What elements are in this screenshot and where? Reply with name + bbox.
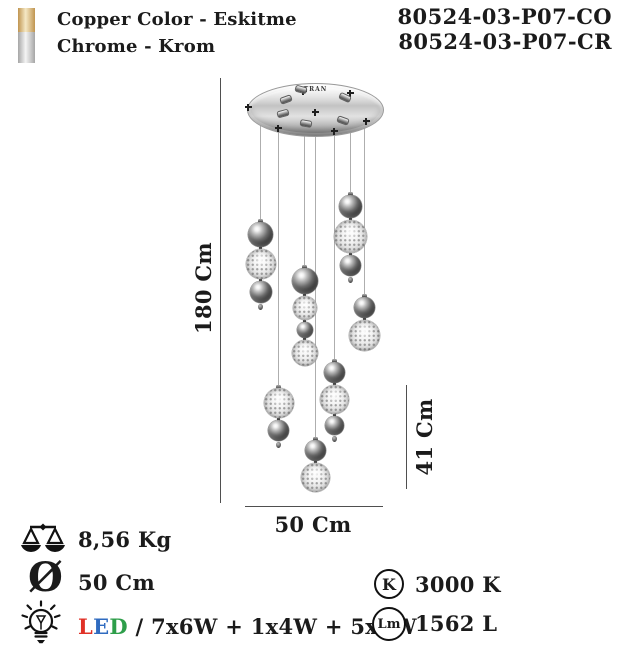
chrome-ball	[305, 440, 326, 461]
lumen-badge: Lm	[372, 607, 406, 641]
glass-ball	[334, 220, 367, 253]
chrome-ball	[354, 297, 375, 318]
product-code-chrome: 80524-03-P07-CR	[398, 29, 612, 54]
pendant-finial	[348, 277, 353, 283]
chrome-ball	[325, 416, 344, 435]
canopy-plus-mark	[275, 125, 282, 132]
pendant-finial	[276, 442, 281, 448]
canopy-plus-mark	[363, 118, 370, 125]
canopy-screw	[299, 119, 312, 128]
brand-label: TRAN	[304, 86, 328, 93]
copper-finish-label: Copper Color - Eskitme	[57, 6, 297, 33]
width-dimension-line	[245, 506, 383, 507]
weight-value: 8,56 Kg	[78, 527, 172, 552]
led-spec: LED / 7x6W + 1x4W + 5x5W	[78, 614, 417, 639]
chrome-ball	[339, 195, 362, 218]
kelvin-value: 3000 K	[415, 572, 501, 597]
chrome-ball	[292, 268, 318, 294]
bulb-icon	[20, 600, 62, 650]
color-swatch	[18, 8, 35, 63]
pendant-wire	[350, 129, 351, 195]
drop-dimension-line	[406, 385, 407, 489]
height-dimension-line	[220, 78, 221, 503]
diameter-icon: Ø	[28, 558, 63, 598]
height-dimension-label: 180 Cm	[191, 218, 217, 358]
pendant-finial	[258, 304, 263, 310]
pendant-wire	[304, 133, 305, 268]
glass-ball	[349, 320, 380, 351]
glass-ball	[293, 296, 317, 320]
width-dimension-label: 50 Cm	[243, 512, 383, 537]
kelvin-badge: K	[374, 569, 404, 599]
chrome-ball	[250, 281, 272, 303]
glass-ball	[264, 388, 294, 418]
chrome-ball	[340, 255, 361, 276]
chrome-ball	[248, 222, 273, 247]
product-spec-sheet: Copper Color - Eskitme Chrome - Krom 805…	[0, 0, 629, 651]
canopy-plus-mark	[331, 128, 338, 135]
pendant-wire	[278, 129, 279, 388]
chrome-swatch	[18, 32, 35, 63]
product-code-copper: 80524-03-P07-CO	[398, 4, 612, 29]
glass-ball	[246, 249, 276, 279]
glass-ball	[320, 385, 349, 414]
copper-swatch	[18, 8, 35, 32]
pendant-finial	[332, 436, 337, 442]
lumen-value: 1562 L	[415, 611, 497, 636]
led-letter-l: L	[78, 614, 93, 639]
diameter-value: 50 Cm	[78, 570, 155, 595]
chrome-ball	[324, 362, 345, 383]
drop-dimension-label: 41 Cm	[412, 387, 438, 487]
finish-labels: Copper Color - Eskitme Chrome - Krom	[57, 6, 297, 60]
canopy-plus-mark	[245, 104, 252, 111]
chrome-finish-label: Chrome - Krom	[57, 33, 297, 60]
led-letter-e: E	[93, 614, 109, 639]
pendant-wire	[364, 125, 365, 297]
canopy-plus-mark	[312, 109, 319, 116]
glass-ball	[292, 340, 318, 366]
glass-ball	[301, 463, 330, 492]
product-codes: 80524-03-P07-CO 80524-03-P07-CR	[398, 4, 612, 54]
pendant-wire	[260, 122, 261, 222]
chrome-ball	[297, 322, 313, 338]
led-letter-d: D	[109, 614, 128, 639]
pendant-wire	[334, 132, 335, 362]
chrome-ball	[268, 420, 289, 441]
